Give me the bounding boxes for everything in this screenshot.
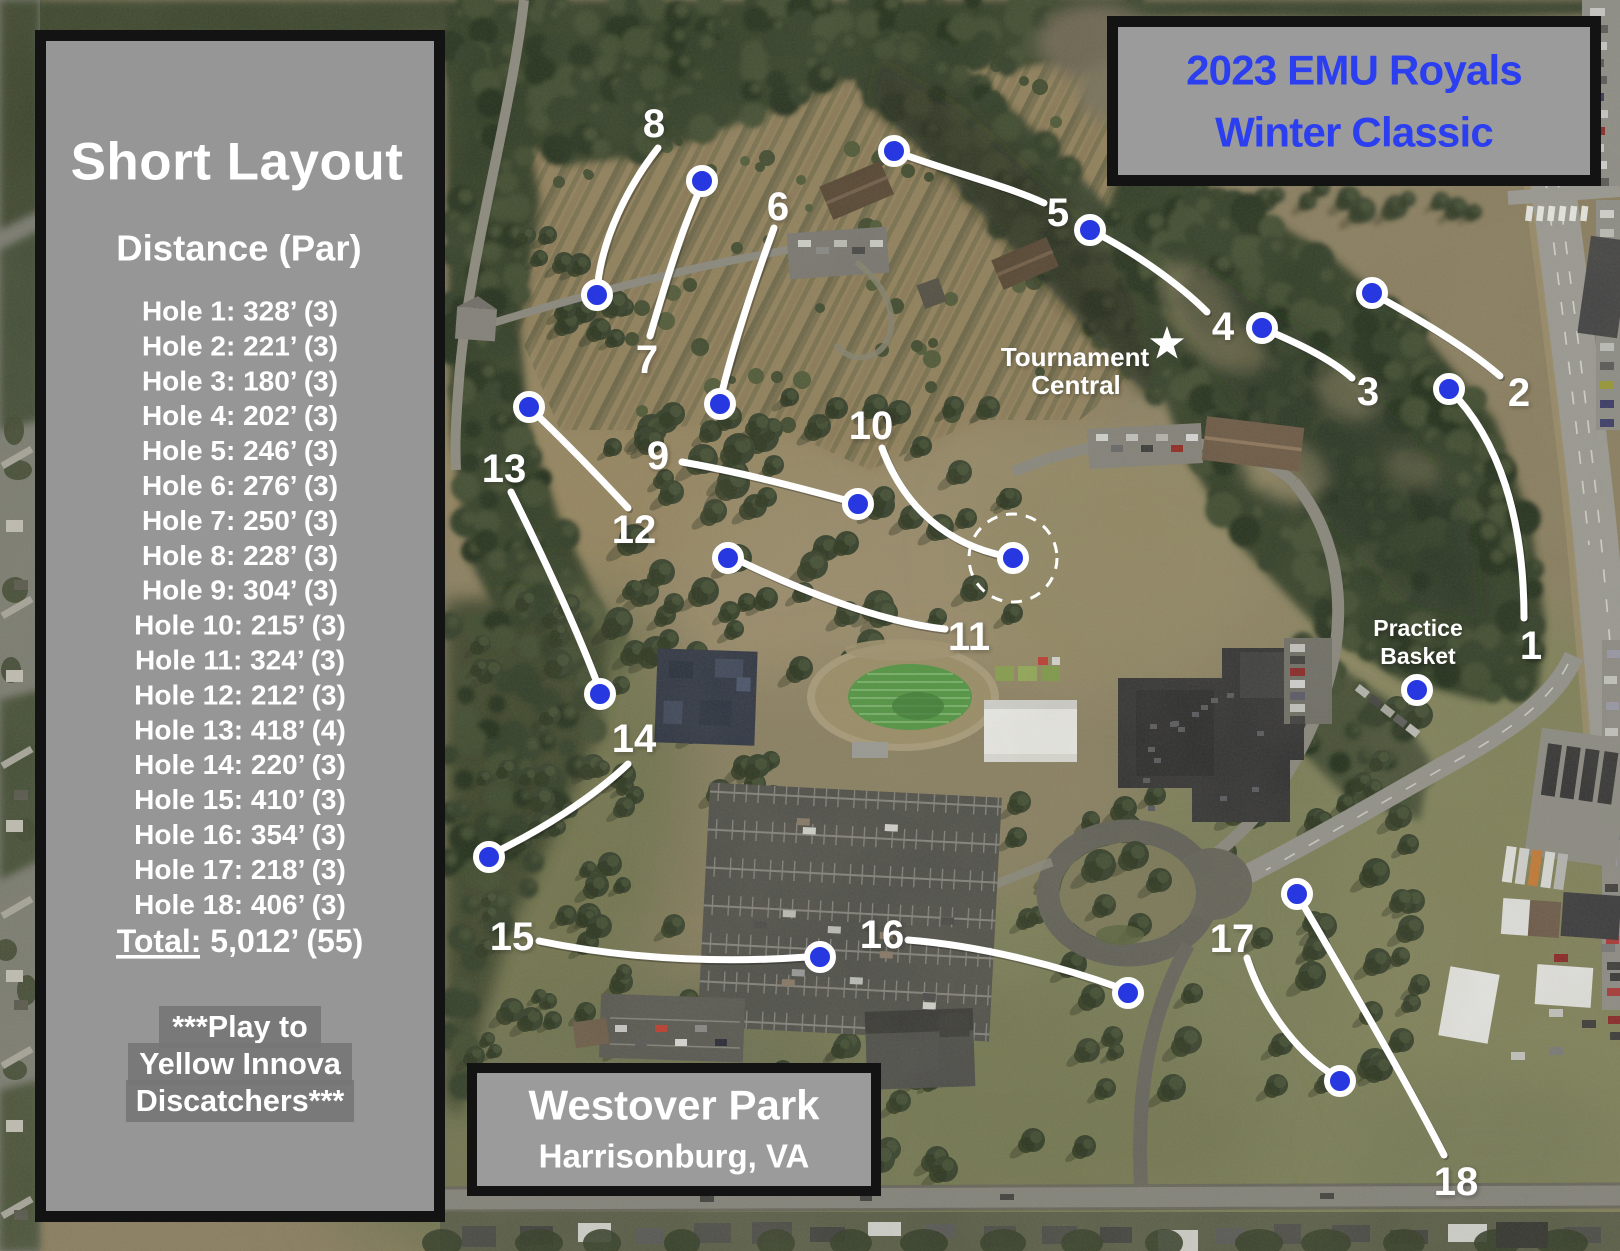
svg-text:Hole 6: 276’ (3): Hole 6: 276’ (3) [142,470,338,501]
svg-text:Harrisonburg, VA: Harrisonburg, VA [539,1138,810,1175]
svg-text:Yellow Innova: Yellow Innova [139,1047,342,1081]
svg-text:Hole 15: 410’ (3): Hole 15: 410’ (3) [134,784,346,815]
svg-text:Total: 5,012’ (55): Total: 5,012’ (55) [117,923,364,959]
svg-text:14: 14 [612,717,657,761]
svg-text:Hole 2: 221’ (3): Hole 2: 221’ (3) [142,330,338,361]
svg-text:Practice: Practice [1373,615,1463,641]
svg-text:Hole 16: 354’ (3): Hole 16: 354’ (3) [134,819,346,850]
svg-text:Hole 5: 246’ (3): Hole 5: 246’ (3) [142,435,338,466]
svg-text:Hole 3: 180’ (3): Hole 3: 180’ (3) [142,365,338,396]
svg-text:Hole 8: 228’ (3): Hole 8: 228’ (3) [142,540,338,571]
svg-text:1: 1 [1520,624,1542,668]
svg-text:3: 3 [1357,370,1379,414]
svg-text:Hole 7: 250’ (3): Hole 7: 250’ (3) [142,505,338,536]
svg-text:Westover Park: Westover Park [528,1082,820,1129]
svg-text:16: 16 [860,913,905,957]
svg-text:Tournament: Tournament [1001,342,1150,372]
svg-text:Discatchers***: Discatchers*** [136,1084,345,1118]
svg-text:4: 4 [1212,305,1235,349]
svg-text:17: 17 [1210,917,1255,961]
svg-text:Hole 13: 418’ (4): Hole 13: 418’ (4) [134,714,346,745]
svg-text:13: 13 [482,447,527,491]
svg-text:Basket: Basket [1380,643,1456,669]
svg-text:Hole 1: 328’ (3): Hole 1: 328’ (3) [142,296,338,327]
svg-text:2: 2 [1508,371,1530,415]
svg-text:8: 8 [643,102,665,146]
svg-text:Hole 12: 212’ (3): Hole 12: 212’ (3) [134,679,346,710]
svg-text:18: 18 [1434,1160,1479,1204]
svg-text:5: 5 [1047,191,1069,235]
svg-text:7: 7 [636,338,658,382]
svg-text:11: 11 [948,615,990,659]
svg-text:Short Layout: Short Layout [71,133,404,192]
svg-text:Hole 17: 218’ (3): Hole 17: 218’ (3) [134,854,346,885]
svg-text:Hole 9: 304’ (3): Hole 9: 304’ (3) [142,575,338,606]
svg-text:15: 15 [490,915,535,959]
svg-text:12: 12 [612,508,657,552]
svg-text:***Play to: ***Play to [172,1010,308,1044]
svg-text:10: 10 [849,404,894,448]
svg-text:Hole 10: 215’ (3): Hole 10: 215’ (3) [134,610,346,641]
svg-text:Central: Central [1031,370,1121,400]
svg-text:Hole 11: 324’ (3): Hole 11: 324’ (3) [135,645,345,676]
svg-text:Distance (Par): Distance (Par) [116,228,361,269]
svg-text:Hole 4: 202’ (3): Hole 4: 202’ (3) [142,400,338,431]
svg-text:Hole 14: 220’ (3): Hole 14: 220’ (3) [134,749,346,780]
svg-text:6: 6 [767,185,789,229]
svg-text:Hole 18: 406’ (3): Hole 18: 406’ (3) [134,889,346,920]
svg-text:Winter Classic: Winter Classic [1215,109,1493,156]
svg-text:2023 EMU Royals: 2023 EMU Royals [1186,47,1522,94]
svg-text:9: 9 [647,434,669,478]
